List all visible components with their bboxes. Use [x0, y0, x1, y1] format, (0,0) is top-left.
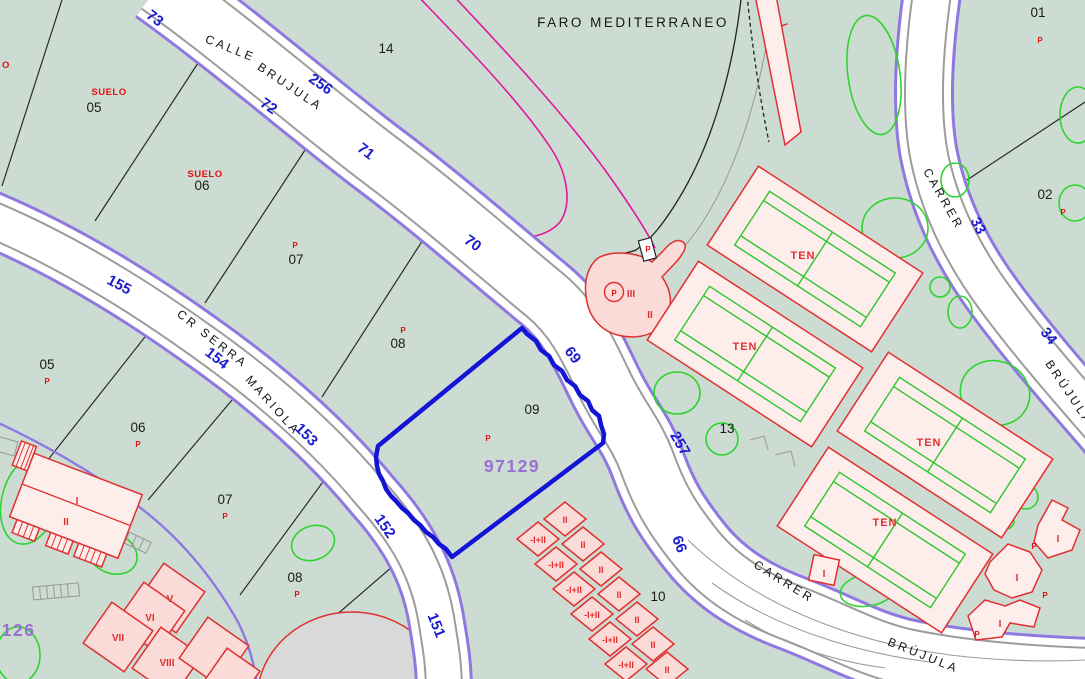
p-mark: P [292, 241, 298, 250]
townhouse-label: -I+II [566, 585, 582, 595]
building-floor-label: I [1057, 534, 1060, 545]
building-floor-label: I [1016, 573, 1019, 584]
tennis-label: TEN [733, 341, 758, 353]
p-mark: P [485, 434, 491, 443]
parcel-number: 07 [217, 492, 232, 507]
p-mark: P [400, 326, 406, 335]
building-floor-label: VIII [159, 658, 174, 669]
parcel-number: 13 [719, 421, 734, 436]
townhouse-label: -I+II [618, 660, 634, 670]
suelo-label: SUELO [187, 169, 222, 180]
townhouse-label: -I+II [548, 560, 564, 570]
building-floor-label: II [63, 517, 69, 528]
parcel-number: 06 [130, 420, 145, 435]
building-floor-label: V [167, 594, 174, 605]
suelo-label-partial: O [2, 60, 10, 71]
p-mark: P [611, 289, 617, 298]
parcel-number: 07 [288, 252, 303, 267]
building-floor-label: I [823, 569, 826, 580]
townhouse-label: II [650, 640, 655, 650]
townhouse-label: II [580, 540, 585, 550]
townhouse-label: II [616, 590, 621, 600]
townhouse-label: II [634, 615, 639, 625]
parcel-number: 05 [39, 357, 54, 372]
parcel-number: 09 [524, 402, 539, 417]
p-mark: P [645, 245, 651, 254]
suelo-label: SUELO [91, 87, 126, 98]
townhouse-label: -I+II [602, 635, 618, 645]
parcel-number: 14 [378, 41, 394, 56]
townhouse-label: II [562, 515, 567, 525]
building-floor-label: I [999, 619, 1002, 630]
p-mark: P [294, 590, 300, 599]
townhouse-label: -I+II [584, 610, 600, 620]
p-mark: P [44, 377, 50, 386]
parcel-number: 10 [650, 589, 665, 604]
parcel-number: 08 [390, 336, 405, 351]
map-canvas[interactable]: I P P III II [0, 0, 1085, 679]
p-mark: P [1060, 208, 1066, 217]
partial-parcel-reference: 5126 [0, 620, 35, 640]
townhouse-label: II [598, 565, 603, 575]
p-mark: P [974, 630, 980, 639]
selected-parcel-reference[interactable]: 97129 [484, 456, 540, 476]
building-floor-label: II [647, 310, 653, 321]
cadastral-map-viewport[interactable]: I P P III II [0, 0, 1085, 679]
parcel-number: 06 [194, 178, 209, 193]
p-mark: P [1042, 591, 1048, 600]
tennis-label: TEN [791, 250, 816, 262]
p-mark: P [1037, 36, 1043, 45]
townhouse-label: -I+II [530, 535, 546, 545]
building-floor-label: VI [145, 613, 155, 624]
p-mark: P [1031, 542, 1037, 551]
tennis-label: TEN [873, 517, 898, 529]
small-square-building: I [809, 555, 840, 586]
p-mark: P [222, 512, 228, 521]
area-label: FARO MEDITERRANEO [537, 15, 729, 30]
parcel-number: 02 [1037, 187, 1052, 202]
tennis-label: TEN [917, 437, 942, 449]
parcel-number: 08 [287, 570, 302, 585]
building-floor-label: VII [112, 633, 124, 644]
building-floor-label: I [76, 496, 79, 507]
parcel-number: 01 [1030, 5, 1045, 20]
townhouse-label: II [664, 665, 669, 675]
building-floor-label: III [627, 289, 636, 300]
parcel-number: 05 [86, 100, 101, 115]
p-mark: P [135, 440, 141, 449]
